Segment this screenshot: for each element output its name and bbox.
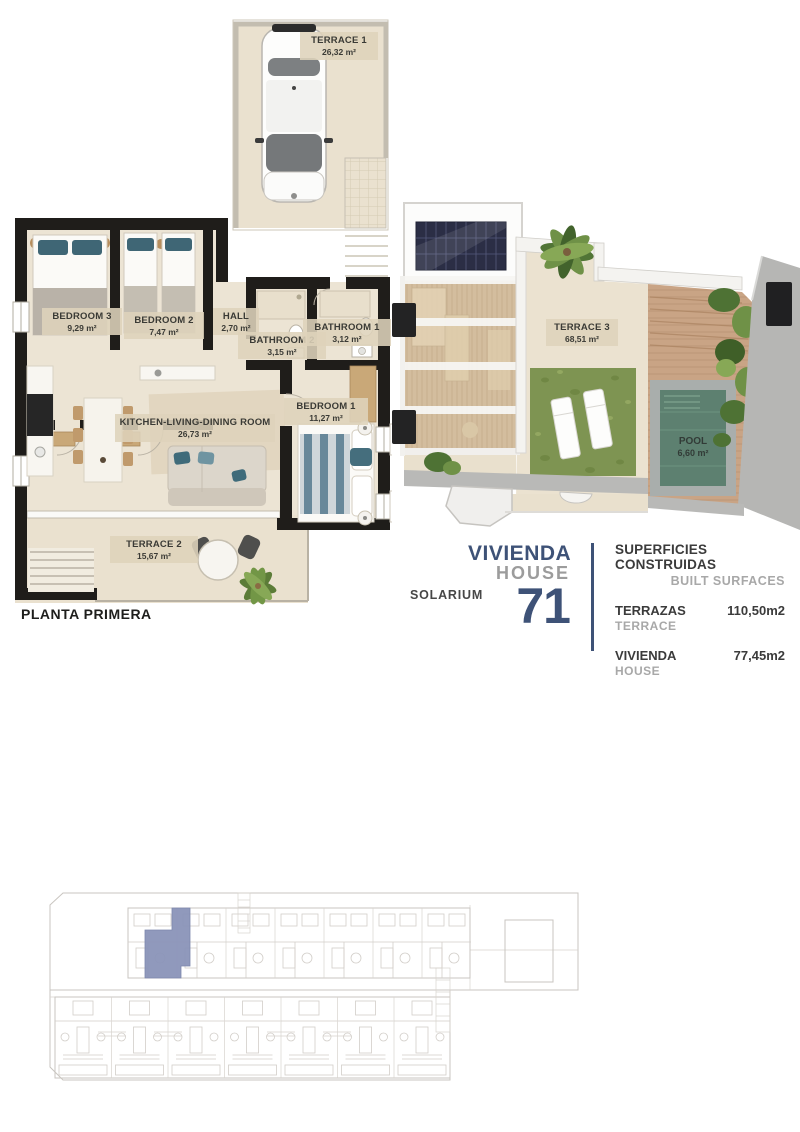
vivienda-label: VIVIENDA	[615, 648, 676, 663]
terrace1-tiled-area	[345, 158, 386, 228]
pool-area: 6,60 m²	[677, 448, 708, 458]
ac-unit	[766, 282, 792, 326]
terrace2-label: TERRACE 2	[126, 539, 182, 550]
terrace2-area: 15,67 m²	[137, 551, 171, 561]
unit-number: 71	[468, 583, 570, 629]
solar-building	[404, 203, 522, 281]
info-divider	[591, 543, 594, 651]
bedroom2-area: 7,47 m²	[149, 327, 178, 337]
bathroom2-area: 3,15 m²	[267, 347, 296, 357]
hall-area: 2,70 m²	[221, 323, 250, 333]
pool-label: POOL	[679, 436, 707, 447]
terrace1-area: 26,32 m²	[322, 47, 356, 57]
bedroom3-area: 9,29 m²	[67, 323, 96, 333]
stove	[27, 394, 53, 436]
site-stairs	[238, 893, 250, 933]
surfaces-title-es: SUPERFICIES CONSTRUIDAS	[615, 542, 785, 572]
terrazas-label: TERRAZAS	[615, 603, 686, 618]
site-pool	[505, 920, 553, 982]
terrace1: TERRACE 1 26,32 m²	[233, 20, 388, 276]
grass-area	[530, 368, 636, 476]
house-label-en: HOUSE	[615, 664, 785, 678]
solarium-plan: POOL 6,60 m²	[392, 195, 800, 545]
terrace3-area: 68,51 m²	[565, 334, 599, 344]
ac-unit	[392, 303, 416, 337]
bathroom1-area: 3,12 m²	[332, 334, 361, 344]
room-label-bedroom3: BEDROOM 3 9,29 m²	[42, 308, 122, 335]
highlighted-unit-71	[145, 908, 190, 978]
bathroom1-label: BATHROOM 1	[314, 322, 380, 333]
room-label-bathroom1: BATHROOM 1 3,12 m²	[303, 319, 391, 346]
round-table	[198, 540, 238, 580]
vivienda-value: 77,45m2	[734, 648, 785, 663]
sofa	[168, 446, 266, 506]
hall-label: HALL	[223, 311, 249, 322]
room-label-terrace2: TERRACE 2 15,67 m²	[110, 536, 198, 563]
bedroom3-label: BEDROOM 3	[52, 311, 111, 322]
unit-card: VIVIENDA HOUSE 71	[468, 543, 570, 629]
room-label-kitchen: KITCHEN-LIVING-DINING ROOM 26,73 m²	[115, 414, 275, 442]
bedroom1-label: BEDROOM 1	[296, 401, 356, 412]
terrace3-label: TERRACE 3	[554, 322, 610, 333]
room-label-hall: HALL 2,70 m²	[213, 308, 259, 335]
floor-plan-title: PLANTA PRIMERA	[21, 606, 152, 622]
room-label-terrace3: TERRACE 3 68,51 m²	[546, 319, 618, 346]
bedroom1-area: 11,27 m²	[309, 413, 343, 423]
unit-name-es: VIVIENDA	[468, 543, 570, 564]
bedroom2-label: BEDROOM 2	[134, 315, 193, 326]
sliding-door	[27, 511, 280, 518]
solar-panel	[416, 222, 506, 270]
kitchen-label: KITCHEN-LIVING-DINING ROOM	[120, 417, 271, 428]
terrazas-value: 110,50m2	[727, 603, 785, 618]
site-bottom-row	[55, 968, 450, 1078]
ac-unit	[392, 410, 416, 444]
first-floor-plan: TERRACE 1 26,32 m²	[8, 12, 392, 625]
solarium-right-wall	[738, 256, 800, 530]
surfaces-title-en: BUILT SURFACES	[615, 574, 785, 588]
terrace-label-en: TERRACE	[615, 619, 785, 633]
kitchen-area: 26,73 m²	[178, 429, 212, 439]
surfaces-row-terrace: TERRAZAS 110,50m2 TERRACE	[615, 603, 785, 633]
room-label-terrace1: TERRACE 1 26,32 m²	[300, 32, 378, 60]
room-label-bedroom1: BEDROOM 1 11,27 m²	[284, 398, 368, 425]
surfaces-row-house: VIVIENDA 77,45m2 HOUSE	[615, 648, 785, 678]
room-label-bedroom2: BEDROOM 2 7,47 m²	[124, 312, 204, 339]
terrace1-label: TERRACE 1	[311, 35, 367, 46]
entrance-steps	[345, 236, 388, 276]
surfaces-table: SUPERFICIES CONSTRUIDAS BUILT SURFACES T…	[615, 542, 785, 678]
site-plan	[20, 885, 590, 1100]
site-boundary	[50, 893, 578, 1080]
brochure-page: TERRACE 1 26,32 m²	[0, 0, 800, 1132]
